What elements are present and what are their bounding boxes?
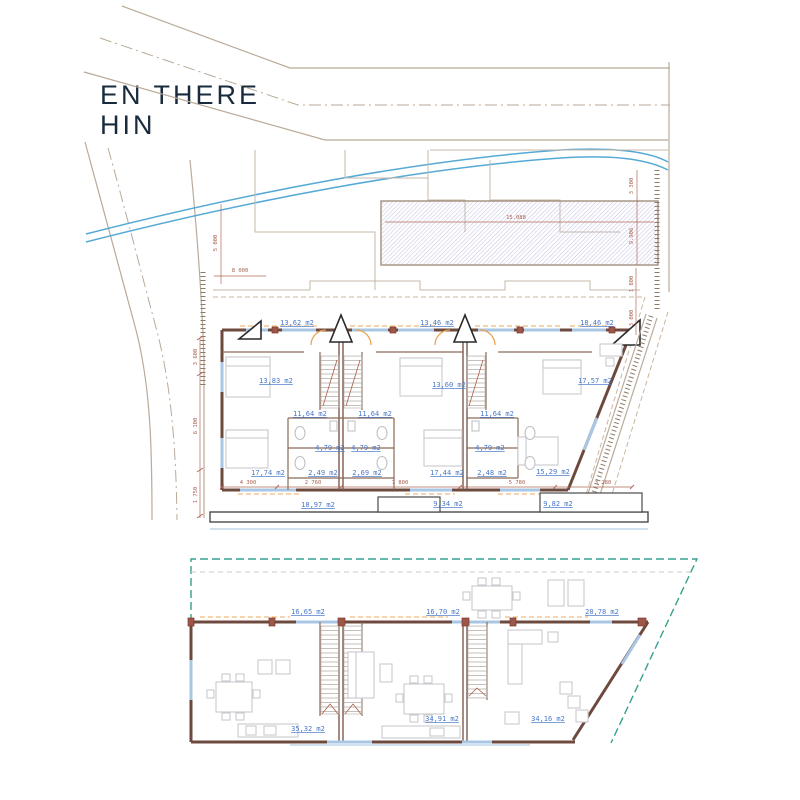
terrace-area-3: 9,82 m2 [543,500,573,508]
road-dim-0: 3 600 [193,349,199,366]
landing-area-2: 11,64 m2 [358,410,392,418]
balcony-area-1: 13,62 m2 [280,319,314,327]
site-dim-left-width: 8 000 [232,268,249,274]
road-edge-left-outer [85,142,152,520]
hatch-width-dim: 15.088 [506,215,526,221]
upper-floor-plan: 4 300 2 760 7 800 5 780 3 280 1 800 3 00… [210,268,668,529]
lower-bedroom-area-2: 17,44 m2 [430,469,464,477]
dim-bottom-2: 7 800 [392,480,409,486]
living-area-1: 35,32 m2 [291,725,325,733]
terrace-area-1: 18,97 m2 [301,501,335,509]
title-line-2: HIN [100,110,156,140]
dim-bottom-3: 5 780 [509,480,526,486]
slant-window [584,418,597,450]
hatched-building [381,201,658,265]
living-area-3: 34,16 m2 [531,715,565,723]
lower-bedroom-area-3: 15,29 m2 [536,468,570,476]
dim-bottom-0: 4 300 [240,480,257,486]
g-terrace-area-3: 20,78 m2 [585,608,619,616]
dim-right-1: 3 000 [629,310,635,327]
landing-area-1: 11,64 m2 [293,410,327,418]
road-dim-1: 6 100 [193,418,199,435]
sheet-title: EN THERE HIN [100,80,260,140]
bath-area-3: 4,79 m2 [475,444,505,452]
g-terrace-area-1: 16,65 m2 [291,608,325,616]
bath-area-2: 4,79 m2 [351,444,381,452]
site-dim-left-height: 5 000 [213,235,219,252]
terrace-area-2: 9,34 m2 [433,500,463,508]
east-slope-hatch [584,268,668,514]
neighbour-outline-1 [255,150,375,290]
bath-area-1: 4,79 m2 [315,444,345,452]
dim-bottom-1: 2 760 [305,480,322,486]
wc-area-2: 2,69 m2 [352,469,382,477]
wc-area-3: 2,48 m2 [477,469,507,477]
parapet-step-line [213,281,640,290]
bedroom-area-1: 13,83 m2 [259,377,293,385]
dim-bottom-4: 3 280 [595,480,612,486]
ground-floor-plan: 16,65 m2 16,70 m2 20,78 m2 35,32 m2 34,9… [188,559,697,745]
bedroom-area-2: 13,60 m2 [432,381,466,389]
ground-floor-area-labels: 16,65 m2 16,70 m2 20,78 m2 35,32 m2 34,9… [291,608,619,733]
bedroom-furniture [226,344,622,468]
road-dim-2: 1 750 [193,487,199,504]
drawing-canvas: EN THERE HIN 15.088 3 300 9.906 5 0 [0,0,800,800]
g-terrace-area-2: 16,70 m2 [426,608,460,616]
site-dim-right-lower: 9.906 [629,228,635,245]
wc-area-1: 2,49 m2 [308,469,338,477]
road-edge-top [122,6,670,68]
lower-roof-terrace-band [210,493,648,529]
right-dim-chain: 1 800 3 000 [629,268,636,335]
bedroom-area-3: 17,57 m2 [578,377,612,385]
lower-bedroom-area-1: 17,74 m2 [251,469,285,477]
balcony-area-3: 18,46 m2 [580,319,614,327]
landing-area-3: 11,64 m2 [480,410,514,418]
road-centerline-left [108,148,177,520]
site-dim-right-upper: 3 300 [629,178,635,195]
architectural-drawing-sheet: EN THERE HIN 15.088 3 300 9.906 5 0 [0,0,800,800]
balcony-area-2: 13,46 m2 [420,319,454,327]
dim-right-0: 1 800 [629,276,635,293]
living-area-2: 34,91 m2 [425,715,459,723]
terrace-furniture [463,578,584,618]
